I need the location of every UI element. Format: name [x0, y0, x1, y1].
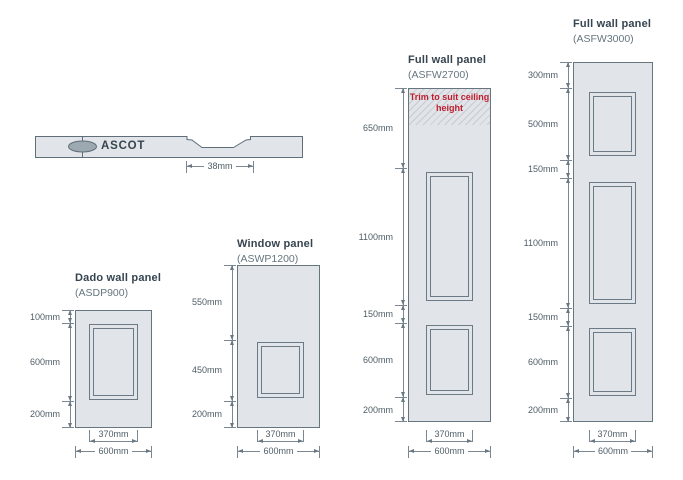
outer-width-dimension: 600mm [408, 446, 491, 458]
dimension-segment [232, 265, 233, 340]
dimension-label: 550mm [178, 297, 222, 307]
dimension-label: 600mm [595, 446, 631, 457]
dimension-segment [403, 397, 404, 422]
inner-width-dimension: 370mm [589, 430, 636, 442]
dimension-segment [568, 326, 569, 398]
panel-title: Full wall panel [573, 18, 651, 30]
inner-width-dimension: 370mm [426, 430, 473, 442]
panel-title: Window panel [237, 238, 313, 250]
dimension-segment [403, 88, 404, 168]
ascot-logo-ellipse [69, 141, 97, 152]
dimension-label: 600mm [514, 357, 558, 367]
dimension-segment [70, 310, 71, 323]
panel-moulding [593, 96, 632, 152]
dimension-line [590, 441, 635, 442]
dimension-segment [403, 323, 404, 397]
dimension-label: 600mm [431, 446, 467, 457]
panel-moulding [593, 186, 632, 300]
dimension-segment [232, 340, 233, 401]
groove-width-dimension: 38mm [186, 161, 254, 173]
dimension-line [427, 441, 472, 442]
panel-moulding [430, 176, 469, 297]
dimension-segment [568, 62, 569, 88]
dimension-segment [568, 308, 569, 326]
dimension-label: 650mm [349, 123, 393, 133]
dimension-segment [403, 305, 404, 323]
dimension-label: 200mm [514, 405, 558, 415]
dimension-label: 150mm [514, 164, 558, 174]
panel-title: Dado wall panel [75, 272, 161, 284]
panel-title: Full wall panel [408, 54, 486, 66]
panel-code: (ASFW2700) [408, 69, 469, 81]
panel-moulding [430, 329, 469, 391]
dimension-segment [70, 323, 71, 401]
dimension-label: 600mm [349, 355, 393, 365]
panel-moulding [261, 346, 300, 394]
dimension-segment [568, 160, 569, 178]
dimension-line [90, 441, 137, 442]
trim-note: Trim to suit ceiling height [409, 92, 490, 114]
dimension-label: 150mm [514, 312, 558, 322]
dimension-label: 600mm [95, 446, 131, 457]
dimension-label: 370mm [258, 429, 303, 439]
outer-width-dimension: 600mm [237, 446, 320, 458]
dimension-label: 300mm [514, 70, 558, 80]
dimension-label: 200mm [16, 409, 60, 419]
dimension-label: 1100mm [349, 232, 393, 242]
dimension-line [258, 441, 303, 442]
dimension-label: 500mm [514, 119, 558, 129]
dimension-label: 1100mm [514, 238, 558, 248]
dimension-label: 600mm [16, 357, 60, 367]
dimension-segment [568, 398, 569, 422]
panel-code: (ASWP1200) [237, 253, 298, 265]
inner-width-dimension: 370mm [257, 430, 304, 442]
dimension-segment [70, 401, 71, 428]
outer-width-dimension: 600mm [573, 446, 653, 458]
panel-dimension-diagram: ASCOT 38mm Dado wall panel (ASDP900) 100… [0, 0, 683, 480]
dimension-label: 200mm [349, 405, 393, 415]
dimension-label: 450mm [178, 365, 222, 375]
dimension-label: 370mm [590, 429, 635, 439]
dimension-segment [403, 168, 404, 305]
dimension-label: 150mm [349, 309, 393, 319]
dimension-label: 200mm [178, 409, 222, 419]
outer-width-dimension: 600mm [75, 446, 152, 458]
ascot-brand-label: ASCOT [101, 140, 145, 152]
dimension-label: 600mm [260, 446, 296, 457]
inner-width-dimension: 370mm [89, 430, 138, 442]
dimension-segment [568, 88, 569, 160]
panel-code: (ASFW3000) [573, 33, 634, 45]
dimension-label: 370mm [90, 429, 137, 439]
panel-code: (ASDP900) [75, 287, 128, 299]
dimension-segment [232, 401, 233, 428]
dimension-label: 100mm [16, 312, 60, 322]
panel-moulding [593, 332, 632, 392]
panel-moulding [93, 328, 134, 396]
dimension-segment [568, 178, 569, 308]
dimension-label: 370mm [427, 429, 472, 439]
dimension-label: 38mm [204, 161, 235, 172]
